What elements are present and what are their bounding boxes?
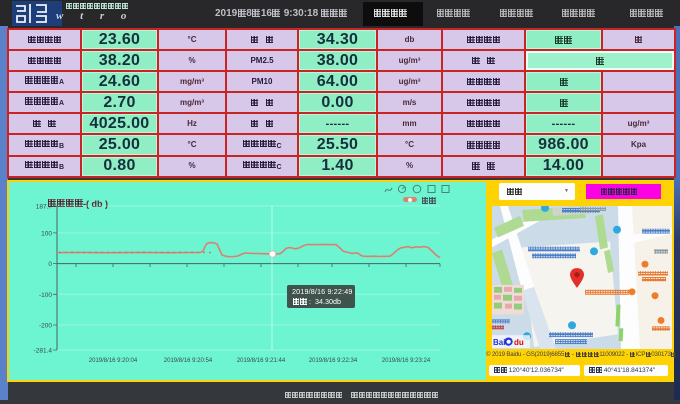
svg-text:100: 100 bbox=[41, 230, 52, 237]
svg-text:-100: -100 bbox=[39, 292, 52, 299]
svg-text:2019/8/16 9:23:24: 2019/8/16 9:23:24 bbox=[382, 358, 431, 364]
svg-text:-281.4: -281.4 bbox=[34, 348, 53, 355]
svg-text:du: du bbox=[514, 338, 524, 347]
svg-text:Bai: Bai bbox=[493, 338, 505, 347]
svg-text:-200: -200 bbox=[39, 323, 52, 330]
svg-text:2019/8/16 9:20:04: 2019/8/16 9:20:04 bbox=[89, 358, 138, 364]
svg-text:2019/8/16 9:22:34: 2019/8/16 9:22:34 bbox=[309, 358, 358, 364]
svg-text:0: 0 bbox=[48, 261, 52, 268]
svg-text:2019/8/16 9:20:54: 2019/8/16 9:20:54 bbox=[164, 358, 213, 364]
svg-text:187.7: 187.7 bbox=[36, 204, 53, 211]
svg-text:2019/8/16 9:21:44: 2019/8/16 9:21:44 bbox=[237, 358, 286, 364]
